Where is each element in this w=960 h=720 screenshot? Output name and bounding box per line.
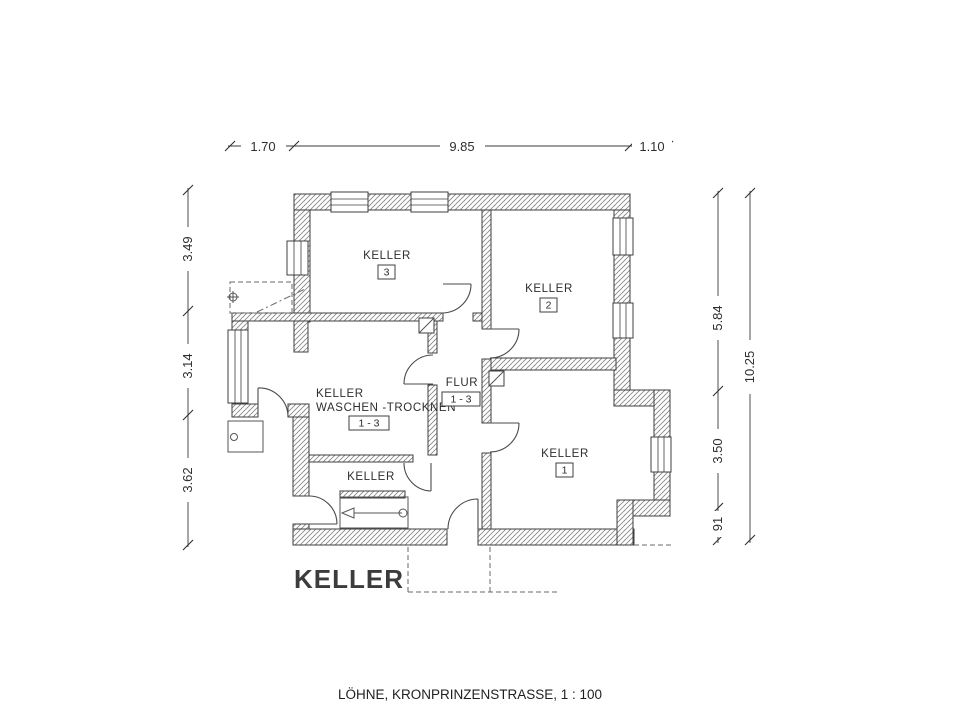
wall-flur-east-b <box>482 359 491 423</box>
room-keller-2: KELLER 2 <box>525 283 573 312</box>
exterior-stair-top-left <box>230 282 292 313</box>
plan-title: KELLER <box>294 564 404 594</box>
room-number-keller-1: 1 <box>562 465 568 477</box>
wall-waschen-east-b <box>428 385 437 455</box>
room-label-flur: FLUR <box>446 377 478 389</box>
door-entrance <box>309 496 337 524</box>
room-keller-3: KELLER 3 <box>363 250 411 279</box>
wall-left-stub <box>294 321 308 352</box>
dim-chain-right-outer: 10.25 <box>742 188 757 545</box>
door-flur-exit <box>448 499 478 529</box>
door-keller3 <box>443 284 471 313</box>
floorplan-drawing: 1.70 9.85 1.10 3.49 3.14 3.62 <box>0 0 960 720</box>
dim-chain-top: 1.70 9.85 1.10 <box>225 139 673 154</box>
floorplan-canvas: 1.70 9.85 1.10 3.49 3.14 3.62 <box>0 0 960 720</box>
dim-left-3: 3.62 <box>180 467 195 492</box>
window-annex <box>228 330 248 403</box>
wall-annex-jog-east <box>288 404 309 417</box>
dim-right-2: 3.50 <box>710 438 725 463</box>
plan-caption: LÖHNE, KRONPRINZENSTRASSE, 1 : 100 <box>338 687 602 702</box>
dim-chain-left: 3.49 3.14 3.62 <box>180 185 195 550</box>
room-label-waschen-line2: WASCHEN -TROCKNEN <box>316 402 456 414</box>
wall-band-keller3 <box>232 313 443 321</box>
chimney-icon <box>489 371 504 386</box>
room-number-waschen: 1 - 3 <box>358 418 379 430</box>
room-label-keller-3: KELLER <box>363 250 411 262</box>
window-right-2 <box>613 303 633 338</box>
door-annex-exterior <box>258 388 288 417</box>
dim-right-total: 10.25 <box>742 351 757 384</box>
room-keller-1: KELLER 1 <box>541 448 589 477</box>
dim-top-2: 9.85 <box>449 139 474 154</box>
wall-bottom-east <box>478 529 634 545</box>
dim-chain-right-inner: 5.84 3.50 91 <box>710 188 725 545</box>
window-bay <box>651 437 671 472</box>
dim-right-1: 5.84 <box>710 305 725 330</box>
dim-right-3: 91 <box>710 517 725 531</box>
wall-annex-jog-west <box>232 404 258 417</box>
wall-band-east <box>473 313 482 321</box>
stair <box>340 497 408 528</box>
dim-top-1: 1.70 <box>250 139 275 154</box>
wall-flur-east-a <box>482 210 491 329</box>
dim-top-3: 1.10 <box>639 139 664 154</box>
door-keller1 <box>490 423 519 452</box>
room-number-keller-2: 2 <box>546 300 552 312</box>
dim-left-1: 3.49 <box>180 236 195 261</box>
light-well <box>228 421 263 452</box>
room-number-keller-3: 3 <box>384 267 390 279</box>
wall-left-lower-a <box>293 417 309 496</box>
wall-flur-east-c <box>482 453 491 529</box>
dim-left-2: 3.14 <box>180 353 195 378</box>
stair-arrow-head-icon <box>342 508 354 518</box>
wall-divider-k2-k1 <box>491 358 616 370</box>
wall-bay-connector <box>617 500 633 545</box>
room-label-waschen-line1: KELLER <box>316 388 364 400</box>
room-number-flur: 1 - 3 <box>450 394 471 406</box>
wall-understair-top <box>309 455 413 462</box>
window-top-2 <box>411 192 448 212</box>
door-understair <box>404 463 431 491</box>
window-right-1 <box>613 218 633 255</box>
wall-bottom-west <box>293 529 447 545</box>
door-keller2 <box>490 329 519 358</box>
window-left-upper <box>287 241 308 275</box>
room-label-keller-1: KELLER <box>541 448 589 460</box>
room-flur: FLUR 1 - 3 <box>442 377 480 406</box>
exterior-stair-bottom <box>408 547 560 592</box>
door-waschen <box>404 355 433 384</box>
chimney-icon <box>419 318 434 333</box>
window-top-1 <box>331 192 368 212</box>
room-label-keller-2: KELLER <box>525 283 573 295</box>
room-label-keller-understair: KELLER <box>347 471 395 483</box>
